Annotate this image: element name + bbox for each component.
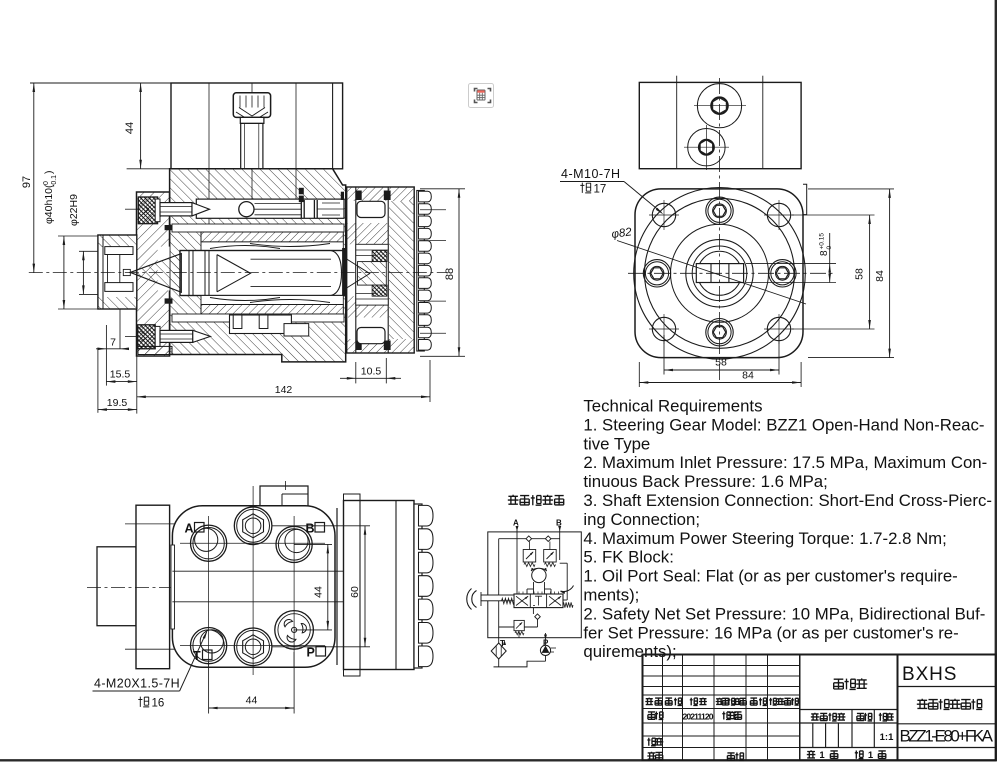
svg-text:97: 97: [21, 176, 33, 188]
svg-text:φ22H9: φ22H9: [68, 194, 80, 226]
svg-text:58: 58: [854, 268, 866, 280]
svg-text:20211120: 20211120: [683, 711, 714, 721]
svg-text:4-M10-7H: 4-M10-7H: [561, 167, 621, 181]
svg-text:A: A: [185, 522, 194, 536]
svg-text:BZZ1-E80+FKA: BZZ1-E80+FKA: [900, 727, 994, 746]
svg-text:58: 58: [715, 357, 727, 369]
svg-text:ments);: ments);: [583, 586, 639, 605]
svg-text:142: 142: [275, 384, 293, 396]
svg-text:Technical Requirements: Technical Requirements: [583, 397, 762, 416]
svg-text:φ40h10(: φ40h10(: [43, 184, 55, 224]
svg-text:60: 60: [349, 586, 361, 598]
svg-text:tinuous Back Pressure: 1.6 MPa: tinuous Back Pressure: 1.6 MPa;: [583, 472, 827, 491]
svg-text:P: P: [307, 646, 315, 660]
svg-text:3. Shaft Extension Connection:: 3. Shaft Extension Connection: Short-End…: [583, 491, 992, 510]
svg-text:10.5: 10.5: [361, 366, 382, 378]
svg-text:T: T: [193, 649, 201, 663]
svg-text:2. Safety Net Set Pressure: 10: 2. Safety Net Set Pressure: 10 MPa, Bidi…: [583, 604, 985, 623]
svg-text:BXHS: BXHS: [902, 664, 957, 685]
svg-text:88: 88: [444, 268, 456, 280]
svg-text:-0.1: -0.1: [51, 175, 58, 187]
svg-text:7: 7: [110, 337, 116, 349]
svg-text:1: 1: [819, 750, 825, 761]
svg-text:44: 44: [313, 586, 325, 598]
svg-text:17: 17: [594, 184, 607, 196]
svg-text:ing Connection;: ing Connection;: [583, 510, 700, 529]
svg-text:): ): [43, 171, 55, 175]
svg-text:19.5: 19.5: [107, 397, 128, 409]
svg-text:8: 8: [819, 250, 830, 256]
svg-text:1. Oil Port Seal: Flat (or as: 1. Oil Port Seal: Flat (or as per custom…: [583, 567, 957, 586]
svg-text:1:1: 1:1: [880, 732, 894, 743]
svg-text:0: 0: [43, 181, 50, 185]
svg-text:2. Maximum Inlet Pressure: 17.: 2. Maximum Inlet Pressure: 17.5 MPa, Max…: [583, 453, 987, 472]
svg-text:4-M20X1.5-7H: 4-M20X1.5-7H: [94, 677, 180, 691]
svg-text:16: 16: [152, 698, 165, 710]
svg-text:15.5: 15.5: [110, 369, 131, 381]
svg-text:4. Maximum Power Steering Torq: 4. Maximum Power Steering Torque: 1.7-2.…: [583, 529, 946, 548]
svg-text:+0.15: +0.15: [819, 233, 826, 250]
svg-text:tive Type: tive Type: [583, 434, 650, 453]
svg-text:84: 84: [742, 370, 754, 382]
svg-text:fer Set Pressure: 16 MPa (or a: fer Set Pressure: 16 MPa (or as per cust…: [583, 623, 958, 642]
svg-text:84: 84: [874, 270, 886, 282]
svg-text:44: 44: [246, 695, 258, 707]
svg-text:B: B: [306, 522, 315, 536]
svg-text:5. FK Block:: 5. FK Block:: [583, 548, 673, 567]
svg-text:44: 44: [124, 122, 136, 134]
svg-text:1: 1: [868, 750, 874, 761]
svg-text:1. Steering Gear Model: BZZ1 O: 1. Steering Gear Model: BZZ1 Open-Hand N…: [583, 415, 984, 434]
svg-text:0: 0: [826, 246, 833, 250]
